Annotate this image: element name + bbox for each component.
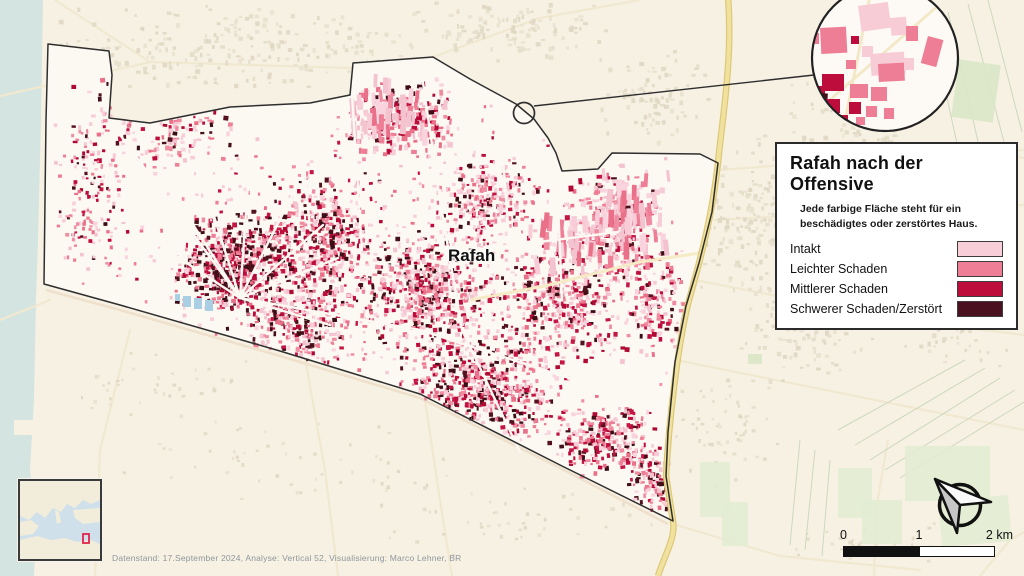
legend-item-label: Leichter Schaden — [790, 262, 887, 276]
legend-item-label: Mittlerer Schaden — [790, 282, 888, 296]
map-figure: Rafah nach der Offensive Jede farbige Fl… — [0, 0, 1024, 576]
legend-swatch — [957, 301, 1003, 317]
legend-title: Rafah nach der Offensive — [790, 153, 1003, 195]
legend-item-label: Intakt — [790, 242, 821, 256]
legend-item-1: Leichter Schaden — [790, 260, 1003, 277]
north-arrow-icon — [925, 468, 999, 540]
legend-item-3: Schwerer Schaden/Zerstört — [790, 300, 1003, 317]
legend-swatch — [957, 261, 1003, 277]
legend-panel: Rafah nach der Offensive Jede farbige Fl… — [775, 142, 1018, 330]
legend-swatch — [957, 241, 1003, 257]
legend-items: IntaktLeichter SchadenMittlerer SchadenS… — [790, 240, 1003, 317]
legend-swatch — [957, 281, 1003, 297]
legend-item-0: Intakt — [790, 240, 1003, 257]
locator-map — [17, 478, 103, 562]
city-label-rafah: Rafah — [448, 246, 495, 266]
legend-subtitle: Jede farbige Fläche steht für ein beschä… — [800, 202, 990, 231]
attribution-text: Datenstand: 17.September 2024, Analyse: … — [112, 553, 462, 563]
scale-bar-graphic — [843, 546, 995, 557]
legend-item-2: Mittlerer Schaden — [790, 280, 1003, 297]
legend-item-label: Schwerer Schaden/Zerstört — [790, 302, 942, 316]
scale-label-mid: 1 — [916, 528, 923, 542]
scale-label-start: 0 — [840, 528, 847, 542]
